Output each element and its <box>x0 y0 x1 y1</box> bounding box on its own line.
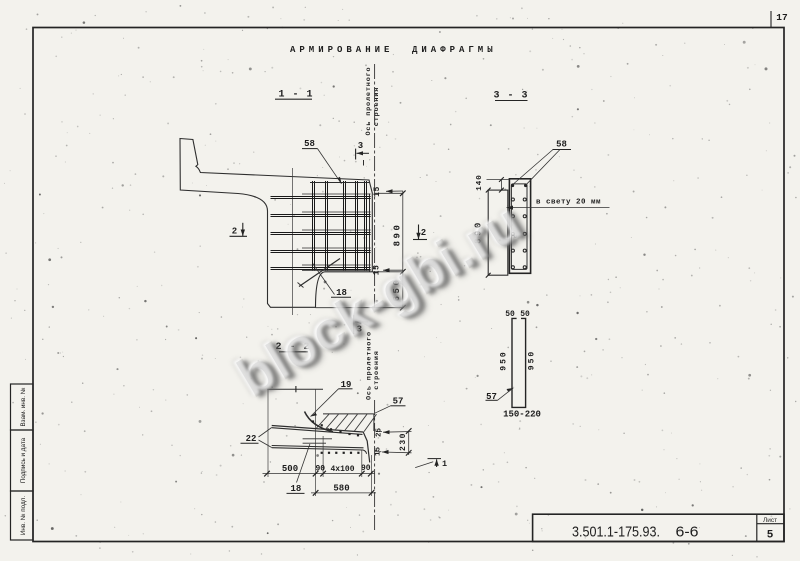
svg-text:4x100: 4x100 <box>330 465 354 474</box>
svg-text:90: 90 <box>361 464 371 473</box>
svg-text:Взам. инв. №: Взам. инв. № <box>20 387 27 426</box>
svg-text:6-6: 6-6 <box>676 523 699 540</box>
svg-text:строения: строения <box>373 350 381 389</box>
svg-text:Подпись и дата: Подпись и дата <box>20 437 27 483</box>
svg-text:230: 230 <box>399 432 408 451</box>
svg-text:500: 500 <box>282 464 298 474</box>
svg-text:15: 15 <box>374 447 382 457</box>
svg-text:58: 58 <box>556 140 567 150</box>
svg-text:Лист: Лист <box>763 517 777 524</box>
svg-text:5: 5 <box>767 529 774 541</box>
svg-text:15: 15 <box>373 186 382 197</box>
svg-text:90: 90 <box>315 464 325 473</box>
svg-text:3: 3 <box>358 141 363 151</box>
svg-text:580: 580 <box>333 483 349 493</box>
svg-text:1: 1 <box>442 459 447 469</box>
svg-text:2: 2 <box>232 227 237 237</box>
svg-text:25: 25 <box>375 428 383 438</box>
svg-text:150-220: 150-220 <box>503 410 541 420</box>
svg-text:57: 57 <box>393 396 404 406</box>
svg-text:22: 22 <box>246 434 257 444</box>
svg-text:950: 950 <box>500 350 509 370</box>
svg-text:17: 17 <box>776 12 788 23</box>
svg-text:АРМИРОВАНИЕ: АРМИРОВАНИЕ <box>290 45 393 55</box>
svg-text:строения: строения <box>373 87 381 126</box>
svg-text:50: 50 <box>505 310 515 319</box>
svg-text:Инв. № подл.: Инв. № подл. <box>20 496 27 535</box>
svg-text:3 - 3: 3 - 3 <box>493 91 528 102</box>
svg-text:18: 18 <box>290 484 301 494</box>
svg-text:3.501.1-175.93.: 3.501.1-175.93. <box>572 523 660 540</box>
svg-text:ДИАФРАГМЫ: ДИАФРАГМЫ <box>412 45 497 55</box>
svg-text:58: 58 <box>304 139 315 149</box>
svg-text:950: 950 <box>527 350 536 370</box>
svg-text:140: 140 <box>476 174 484 191</box>
svg-text:50: 50 <box>520 310 530 319</box>
svg-text:890: 890 <box>393 223 403 247</box>
svg-text:Ось пролетного: Ось пролетного <box>365 66 373 135</box>
